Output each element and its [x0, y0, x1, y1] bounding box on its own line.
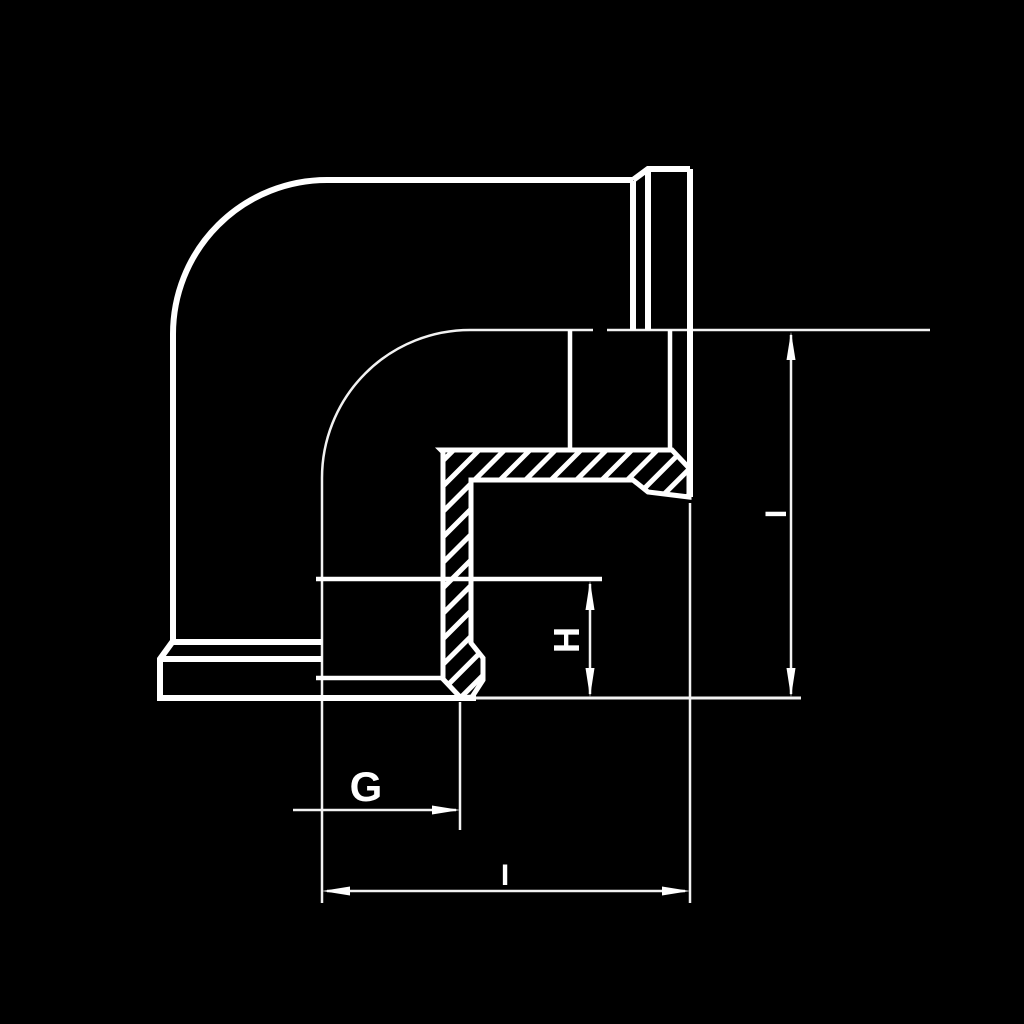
i-vertical-arrow-up [787, 332, 796, 360]
dimension-h: H [546, 581, 595, 697]
g-arrow-right [432, 806, 460, 815]
section-hatch [316, 330, 689, 698]
i-vertical-arrow-down [787, 668, 796, 697]
h-arrow-up [586, 581, 595, 610]
dim-label-g: G [350, 763, 383, 810]
pipe-elbow-section-drawing: H G I I [0, 0, 1024, 1024]
extension-lines [460, 503, 801, 903]
bottom-bead-edge-lines [160, 642, 322, 659]
dim-label-i-vertical: I [760, 510, 793, 518]
elbow-outer-profile [160, 180, 633, 698]
end-bead-top [633, 169, 690, 330]
i-horizontal-arrow-left [322, 887, 350, 896]
elbow-outline [160, 169, 690, 698]
centerlines [322, 330, 930, 903]
dimension-i-vertical: I [760, 332, 796, 697]
i-horizontal-arrow-right [662, 887, 690, 896]
sectioned-wall [441, 450, 689, 698]
dim-label-i-horizontal: I [501, 859, 509, 892]
dim-label-h: H [546, 627, 587, 653]
dimension-i-horizontal: I [322, 859, 690, 896]
h-arrow-down [586, 668, 595, 697]
dimension-g: G [293, 763, 460, 815]
technical-drawing-canvas: H G I I [0, 0, 1024, 1024]
